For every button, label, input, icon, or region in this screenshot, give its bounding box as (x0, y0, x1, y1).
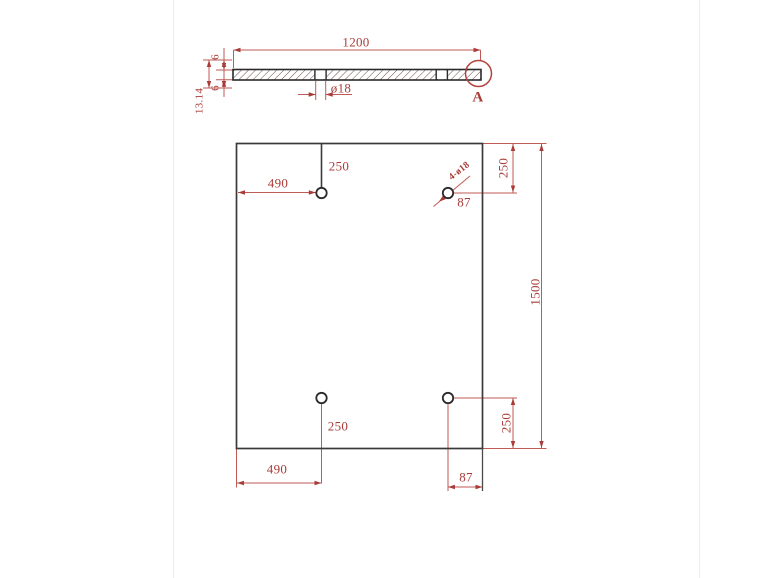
section-view (233, 61, 492, 87)
dim-label-tl-from-left: 490 (268, 177, 288, 190)
dim-label-bl-from-left: 490 (267, 463, 287, 476)
dim-label-thickness-bottom: 6 (211, 85, 222, 91)
dim-label-bl-from-bottom: 250 (328, 420, 348, 433)
section-hole-2 (436, 71, 447, 79)
plan-view (237, 144, 483, 492)
dim-label-thickness-top: 6 (211, 54, 222, 60)
hole-top-right (443, 188, 453, 198)
dim-label-br-from-right: 87 (459, 471, 473, 484)
hole-bottom-right (443, 393, 453, 403)
dim-label-height: 1500 (529, 278, 542, 305)
cad-drawing (0, 0, 770, 578)
dim-label-tr-from-top: 250 (497, 158, 510, 178)
dim-label-br-from-bottom: 250 (500, 413, 513, 433)
dim-label-tl-from-top: 250 (329, 160, 349, 173)
hole-bottom-left (316, 393, 326, 403)
dim-label-hole-diameter: ø18 (331, 82, 351, 95)
dimension-lines (203, 48, 547, 491)
drawing-sheet: 1200 6 6 13.14 ø18 A 250 490 4-ø18 87 25… (0, 0, 770, 578)
dim-label-tr-from-right: 87 (457, 196, 471, 209)
dim-label-length: 1200 (342, 36, 369, 49)
dim-label-overall-thickness: 13.14 (195, 88, 206, 114)
dimension-arrows (207, 48, 544, 489)
section-hole-1 (315, 71, 326, 79)
hole-top-left (316, 188, 326, 198)
detail-marker-label: A (472, 91, 483, 106)
